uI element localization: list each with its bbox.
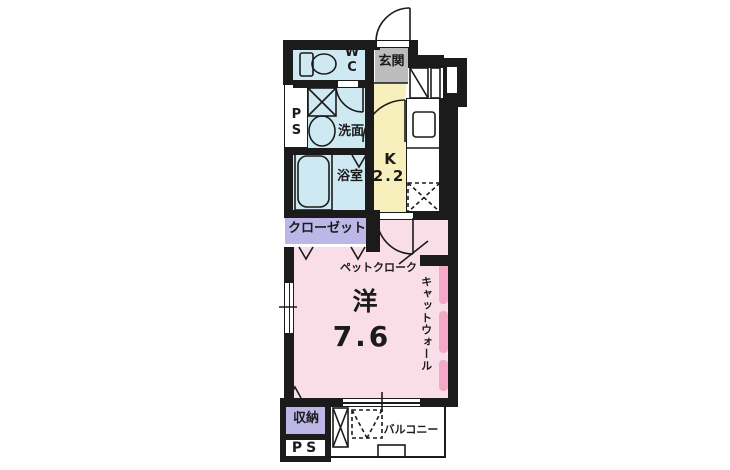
wall bbox=[284, 333, 294, 398]
wall bbox=[448, 218, 458, 407]
entrance-door-sill bbox=[377, 40, 409, 48]
ps-lower-label: PS bbox=[290, 440, 322, 456]
wall bbox=[284, 148, 293, 218]
wall bbox=[293, 80, 338, 88]
shoe-cabinet-icon bbox=[410, 68, 440, 98]
wall bbox=[284, 148, 370, 155]
kitchen-counter-column bbox=[406, 98, 440, 212]
cat-wall-strip bbox=[439, 360, 448, 391]
room-kitchen bbox=[372, 83, 406, 214]
entrance-door-icon bbox=[376, 8, 410, 42]
wall bbox=[358, 80, 366, 88]
wc-label-line2: C bbox=[341, 61, 363, 76]
wc-label: W C bbox=[341, 46, 363, 76]
bathroom-label: 浴室 bbox=[332, 170, 368, 185]
entrance-label: 玄関 bbox=[375, 55, 408, 70]
pet-cloak-label: ペットクローク bbox=[340, 262, 412, 275]
room-kanji-label: 洋 bbox=[348, 288, 382, 317]
wall bbox=[420, 255, 448, 266]
wall bbox=[440, 98, 458, 218]
room-area-label: 7.6 bbox=[330, 321, 394, 353]
ps-upper-label: PS bbox=[288, 102, 303, 144]
wall-block-slot bbox=[447, 67, 457, 93]
storage-label: 収納 bbox=[289, 412, 323, 427]
balcony-label: バルコニー bbox=[382, 424, 440, 437]
balcony-window bbox=[343, 398, 420, 407]
left-window bbox=[284, 283, 294, 333]
floor-plan: W C 玄関 PS 洗面 浴室 K 2.2 クローゼット ペットクローク 洋 7… bbox=[0, 0, 730, 470]
wc-label-line1: W bbox=[341, 46, 363, 61]
cat-wall-strip bbox=[439, 311, 448, 353]
wall bbox=[413, 212, 448, 220]
wall bbox=[284, 398, 343, 407]
wall bbox=[283, 40, 293, 85]
wall bbox=[284, 210, 373, 218]
wall bbox=[420, 398, 448, 407]
room-door-sill bbox=[380, 212, 413, 220]
kitchen-k-label: K bbox=[380, 151, 400, 168]
kitchen-area-label: 2.2 bbox=[371, 168, 407, 185]
wall bbox=[366, 210, 380, 252]
cat-wall-label: キャットウォール bbox=[419, 272, 432, 376]
wall bbox=[284, 247, 294, 283]
cat-wall-strip bbox=[439, 262, 448, 304]
wall bbox=[408, 55, 444, 68]
closet-label: クローゼット bbox=[288, 222, 364, 237]
washroom-label: 洗面 bbox=[334, 125, 368, 140]
wc-door-sill bbox=[338, 80, 358, 88]
